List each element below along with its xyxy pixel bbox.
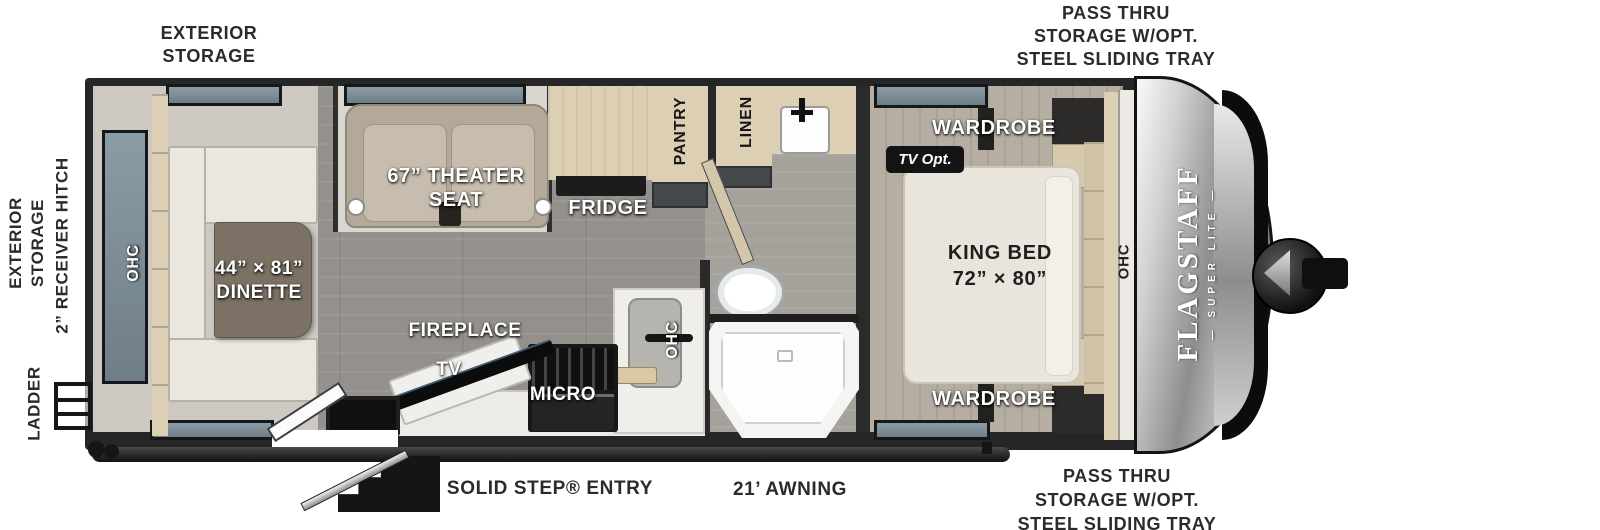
dinette-bottom-window: [150, 420, 274, 440]
label-pantry: PANTRY: [672, 76, 690, 186]
label-micro: MICRO: [503, 384, 623, 406]
awning-rail: [92, 447, 1010, 462]
shower-pan: [721, 332, 845, 424]
label-theater-seat: 67” THEATER SEAT: [356, 164, 556, 212]
shower: [709, 322, 859, 438]
label-exterior-storage-top: EXTERIOR STORAGE: [109, 22, 309, 68]
fridge-front: [556, 176, 646, 196]
label-ohc-rear: OHC: [125, 213, 143, 313]
tv-opt-badge: TV Opt.: [886, 146, 964, 173]
rear-cabinet-strip: [152, 94, 168, 436]
shower-rail: [709, 314, 859, 323]
label-passthru-bottom: PASS THRU STORAGE W/OPT. STEEL SLIDING T…: [967, 464, 1267, 530]
rear-stabilizer-wheel2: [104, 444, 119, 459]
toilet: [715, 265, 785, 320]
label-wardrobe-top: WARDROBE: [904, 117, 1084, 140]
label-linen: LINEN: [738, 67, 756, 177]
label-ohc-kitchen: OHC: [664, 290, 682, 390]
brand-name: FLAGSTAFF: [1172, 133, 1205, 393]
bedroom-bottom-window: [874, 420, 990, 440]
label-exterior-storage-left: EXTERIOR STORAGE: [5, 158, 49, 328]
label-king-bed: KING BED 72” × 80”: [910, 240, 1090, 292]
rear-stabilizer-wheel: [88, 441, 105, 458]
dinette-bench-bottom: [168, 338, 318, 402]
label-solid-step: SOLID STEP® ENTRY: [425, 477, 675, 500]
tv-opt-label: TV Opt.: [898, 151, 951, 168]
brand-logo: FLAGSTAFF — SUPER LITE —: [1172, 133, 1230, 393]
label-fridge: FRIDGE: [538, 197, 678, 220]
dinette-top-window: [166, 84, 282, 106]
label-tv: TV: [409, 359, 489, 381]
label-awning: 21’ AWNING: [700, 478, 880, 501]
rear-ladder: [54, 382, 92, 430]
floorplan-diagram: TV Opt. FLAGSTAFF — SUPER LITE — EXTERIO…: [0, 0, 1600, 530]
label-ladder: LADDER: [23, 344, 46, 464]
label-ohc-bedroom: OHC: [1116, 212, 1133, 312]
ladder-rung2: [58, 412, 88, 416]
label-wardrobe-bottom: WARDROBE: [904, 388, 1084, 411]
label-passthru-top: PASS THRU STORAGE W/OPT. STEEL SLIDING T…: [966, 2, 1266, 71]
label-fireplace: FIREPLACE: [385, 320, 545, 342]
label-dinette: 44” × 81” DINETTE: [179, 257, 339, 305]
label-receiver-hitch: 2” RECEIVER HITCH: [51, 136, 74, 356]
bath-faucet-handle: [791, 110, 813, 115]
awning-end-tab: [982, 442, 992, 454]
fridge-cabinet: [548, 86, 652, 180]
hitch-arm: [1302, 258, 1348, 289]
ladder-rung: [58, 398, 88, 402]
bedroom-top-window: [874, 84, 988, 108]
shower-drain: [777, 350, 793, 362]
theater-window: [344, 84, 526, 106]
brand-sub: — SUPER LITE —: [1207, 133, 1218, 393]
